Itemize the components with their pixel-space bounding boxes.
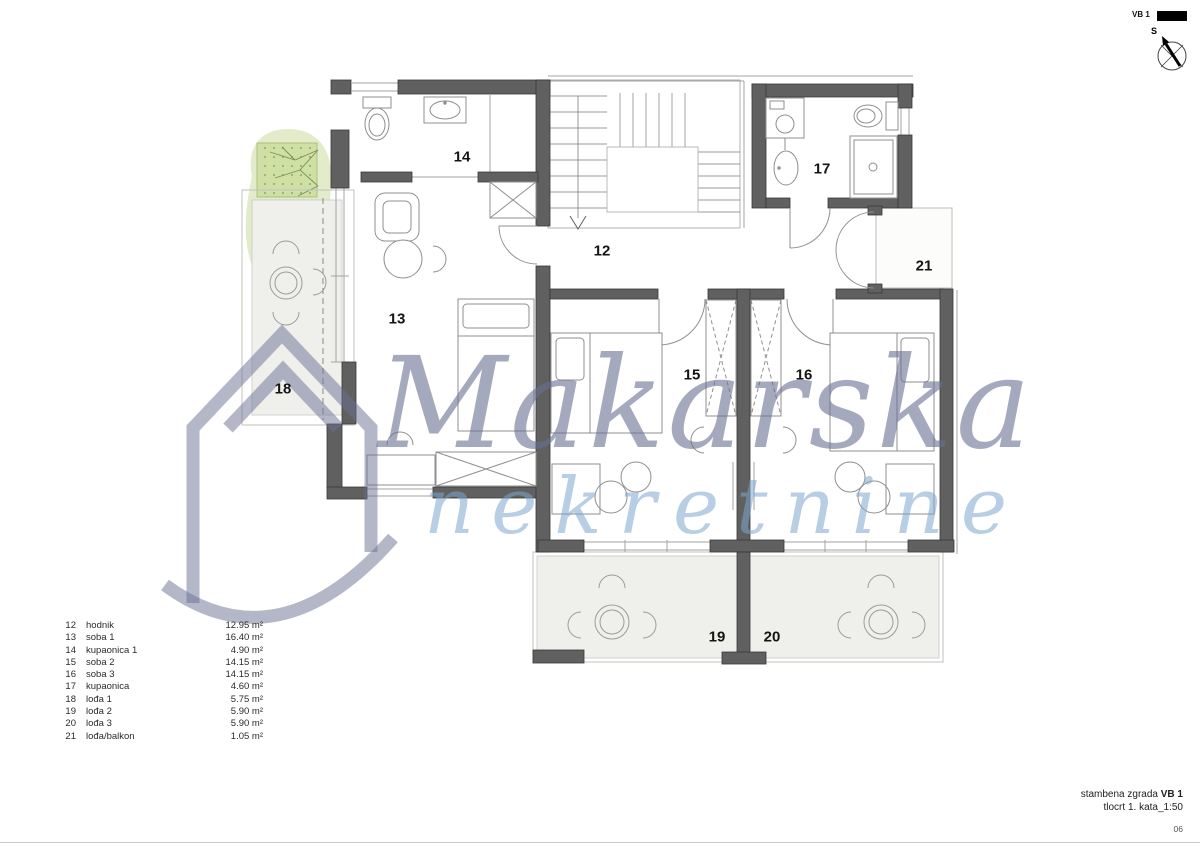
desk-icon bbox=[886, 464, 934, 514]
room-label-12: 12 bbox=[594, 243, 611, 260]
house-logo-icon bbox=[165, 334, 393, 617]
table-icon bbox=[384, 240, 422, 278]
chair-icon bbox=[621, 462, 651, 492]
legend-row: 15soba 214.15 m² bbox=[58, 657, 263, 669]
bed-icon bbox=[551, 333, 662, 433]
stairs-icon bbox=[548, 80, 740, 229]
header-code: VB 1 bbox=[1132, 10, 1150, 19]
legend-row: 21lođa/balkon1.05 m² bbox=[58, 731, 263, 743]
sink-icon bbox=[424, 97, 466, 123]
room-label-20: 20 bbox=[764, 629, 781, 646]
legend-row: 12hodnik12.95 m² bbox=[58, 620, 263, 632]
chair-icon bbox=[691, 427, 704, 453]
room-label-13: 13 bbox=[389, 311, 406, 328]
chair-icon bbox=[858, 481, 890, 513]
north-arrow-icon bbox=[1158, 36, 1186, 70]
room-legend: 12hodnik12.95 m² 13soba 116.40 m² 14kupa… bbox=[58, 620, 263, 743]
bed-icon bbox=[458, 299, 534, 431]
room-label-15: 15 bbox=[684, 367, 701, 384]
shower-icon bbox=[850, 136, 897, 198]
compass-label: S bbox=[1151, 26, 1157, 36]
legend-row: 14kupaonica 14.90 m² bbox=[58, 645, 263, 657]
legend-row: 20lođa 35.90 m² bbox=[58, 718, 263, 730]
room-label-21: 21 bbox=[916, 258, 933, 275]
legend-row: 13soba 116.40 m² bbox=[58, 632, 263, 644]
chair-icon bbox=[835, 462, 865, 492]
room-label-16: 16 bbox=[796, 367, 813, 384]
sheet-title: tlocrt 1. kata_1:50 bbox=[1081, 801, 1183, 814]
header-bar bbox=[1157, 11, 1187, 21]
legend-row: 16soba 314.15 m² bbox=[58, 669, 263, 681]
room-label-18: 18 bbox=[275, 381, 292, 398]
pedestal-sink-icon bbox=[774, 151, 798, 185]
project-title: stambena zgrada VB 1 bbox=[1081, 788, 1183, 801]
room-label-19: 19 bbox=[709, 629, 726, 646]
armchair-icon bbox=[375, 193, 419, 241]
legend-row: 18lođa 15.75 m² bbox=[58, 694, 263, 706]
legend-row: 19lođa 25.90 m² bbox=[58, 706, 263, 718]
page-number: 06 bbox=[1174, 824, 1183, 834]
legend-row: 17kupaonica4.60 m² bbox=[58, 681, 263, 693]
building-code: VB 1 bbox=[1161, 789, 1183, 800]
sheet-border-line bbox=[0, 842, 1200, 843]
chair-icon bbox=[433, 246, 446, 272]
washing-machine-icon bbox=[766, 98, 804, 150]
chair-icon bbox=[387, 432, 413, 445]
door-arcs bbox=[499, 208, 874, 345]
desk-icon bbox=[552, 464, 600, 514]
room-label-17: 17 bbox=[814, 161, 831, 178]
toilet-icon bbox=[363, 97, 391, 140]
bed-icon bbox=[830, 333, 934, 451]
toilet-icon bbox=[854, 102, 898, 130]
chair-icon bbox=[783, 427, 796, 453]
room-label-14: 14 bbox=[454, 149, 471, 166]
floor-plan-sheet: { "header": { "code": "VB 1" }, "compass… bbox=[0, 0, 1200, 848]
title-block: stambena zgrada VB 1 tlocrt 1. kata_1:50 bbox=[1081, 788, 1183, 814]
